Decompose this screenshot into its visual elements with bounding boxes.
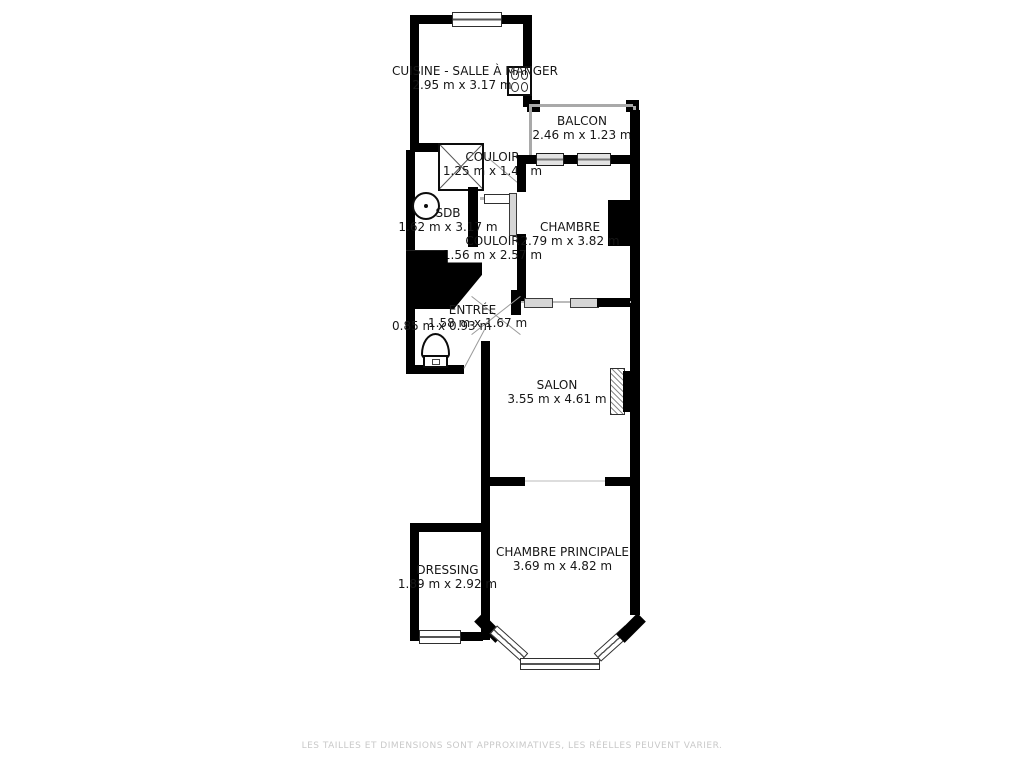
room-name: ENTRÉE (430, 303, 515, 317)
door-panel (524, 298, 553, 308)
room-name: CUISINE - SALLE À MANGER (392, 64, 532, 78)
room-name: CHAMBRE PRINCIPALE (480, 545, 645, 559)
room-label-couloir2: COULOIR 1.56 m x 2.57 m (435, 234, 550, 262)
wall (605, 477, 630, 486)
room-name: COULOIR (435, 234, 550, 248)
wall (410, 523, 483, 532)
room-name: BALCON (522, 114, 642, 128)
room-dims: 2.95 m x 3.17 m (392, 78, 532, 92)
room-dims: 1.56 m x 2.57 m (435, 248, 550, 262)
open-passage (525, 480, 605, 482)
room-dims: 1.62 m x 3.17 m (392, 220, 504, 234)
wall (616, 613, 646, 643)
room-dims: 3.69 m x 4.82 m (480, 559, 645, 573)
room-name: CHAMBRE (500, 220, 640, 234)
room-name: COULOIR (440, 150, 545, 164)
wall (406, 305, 415, 374)
window (452, 12, 502, 27)
room-dims: 2.46 m x 1.23 m (522, 128, 642, 142)
balcony-railing (529, 104, 633, 107)
wall (630, 110, 640, 485)
door-panel (570, 298, 599, 308)
bay-window (490, 625, 529, 661)
room-dims: 1.25 m x 1.42 m (440, 164, 545, 178)
toilet-icon (423, 355, 448, 368)
wall (623, 371, 632, 412)
room-label-sdb: SDB 1.62 m x 3.17 m (392, 206, 504, 234)
window (419, 630, 461, 644)
room-label-couloir1: COULOIR 1.25 m x 1.42 m (440, 150, 545, 178)
wall (490, 477, 525, 486)
bay-window (520, 658, 600, 670)
room-name: SDB (392, 206, 504, 220)
room-label-balcon: BALCON 2.46 m x 1.23 m (522, 114, 642, 142)
room-name: SALON (492, 378, 622, 392)
wall (597, 298, 630, 307)
door-leaf (484, 194, 512, 204)
disclaimer-text: LES TAILLES ET DIMENSIONS SONT APPROXIMA… (0, 741, 1024, 751)
room-label-entree: ENTRÉE (430, 303, 515, 317)
room-label-cuisine: CUISINE - SALLE À MANGER 2.95 m x 3.17 m (392, 64, 532, 92)
window (577, 153, 611, 166)
floor-plan: CUISINE - SALLE À MANGER 2.95 m x 3.17 m… (0, 0, 1024, 768)
room-label-chambre-principale: CHAMBRE PRINCIPALE 3.69 m x 4.82 m (480, 545, 645, 573)
wall (481, 341, 490, 640)
room-label-salon: SALON 3.55 m x 4.61 m (492, 378, 622, 406)
room-dims-entree: 1.58 m x 1.67 m (428, 316, 527, 330)
room-dims: 3.55 m x 4.61 m (492, 392, 622, 406)
room-dims: 1.89 m x 2.92 m (385, 577, 510, 591)
